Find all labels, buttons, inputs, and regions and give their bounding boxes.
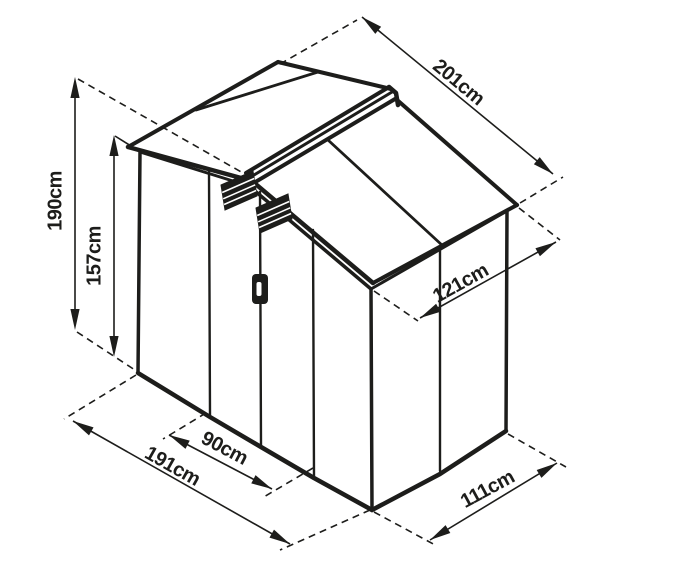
dimension-label-wall-height: 157cm: [83, 226, 105, 286]
front-left-corner: [138, 152, 140, 373]
handle-slot: [257, 282, 262, 296]
extension-line: [280, 510, 370, 550]
door-handle: [252, 274, 268, 304]
extension-line: [374, 291, 418, 321]
front-left-rake-edge: [128, 147, 252, 181]
dimension-total-height: 190cm: [44, 77, 250, 372]
right-back-rake-edge: [396, 99, 517, 205]
door-right-seam: [313, 230, 314, 476]
extension-line: [508, 434, 566, 467]
dimension-roof-length: 201cm: [280, 17, 563, 203]
dimension-roof-depth: 121cm: [374, 208, 560, 321]
extension-line: [77, 332, 138, 372]
ridge-cap: [246, 87, 398, 184]
arrowhead: [420, 304, 441, 318]
dimension-base-depth: 111cm: [374, 434, 566, 546]
arrowhead: [169, 435, 190, 449]
arrowhead: [535, 242, 556, 256]
left-back-rake-edge: [278, 62, 391, 89]
arrowhead: [269, 530, 290, 544]
gable-vent-right: [256, 194, 292, 233]
extension-line: [374, 512, 437, 546]
gable-right-edge: [249, 186, 371, 289]
dimension-label-base-width: 191cm: [141, 442, 204, 491]
arrowhead: [73, 421, 94, 435]
front-right-corner: [371, 289, 372, 510]
front-panel-seam: [209, 172, 210, 415]
ridge-cap-top-edge: [246, 87, 389, 173]
arrowhead: [430, 525, 450, 540]
arrowhead: [70, 309, 79, 330]
back-right-corner: [506, 211, 507, 431]
extension-line: [520, 177, 563, 203]
arrowhead: [251, 475, 272, 489]
extension-line: [64, 375, 136, 419]
arrowhead: [70, 77, 79, 98]
dimension-wall-height: 157cm: [83, 135, 139, 357]
arrowhead: [537, 463, 557, 478]
extension-line: [280, 20, 357, 64]
ridge-cap-bottom-edge: [252, 99, 395, 184]
shed-dimension-diagram: 190cm 157cm 201cm 121cm 90cm: [0, 0, 673, 567]
gable-vent-left: [221, 171, 257, 210]
ridge-cap-mid-line: [249, 92, 392, 178]
right-roof-panel-seam: [328, 140, 443, 246]
dimension-base-width: 191cm: [64, 375, 370, 550]
left-roof-panel-seam: [196, 72, 318, 110]
extension-line: [519, 208, 560, 240]
front-base-edge: [138, 373, 372, 510]
dimension-label-total-height: 190cm: [44, 171, 66, 231]
left-eave-edge: [128, 62, 278, 147]
walls: [138, 152, 507, 510]
diagram-canvas: 190cm 157cm 201cm 121cm 90cm: [0, 0, 673, 567]
dimension-label-roof-length: 201cm: [428, 55, 488, 110]
dimension-label-roof-depth: 121cm: [429, 259, 492, 307]
